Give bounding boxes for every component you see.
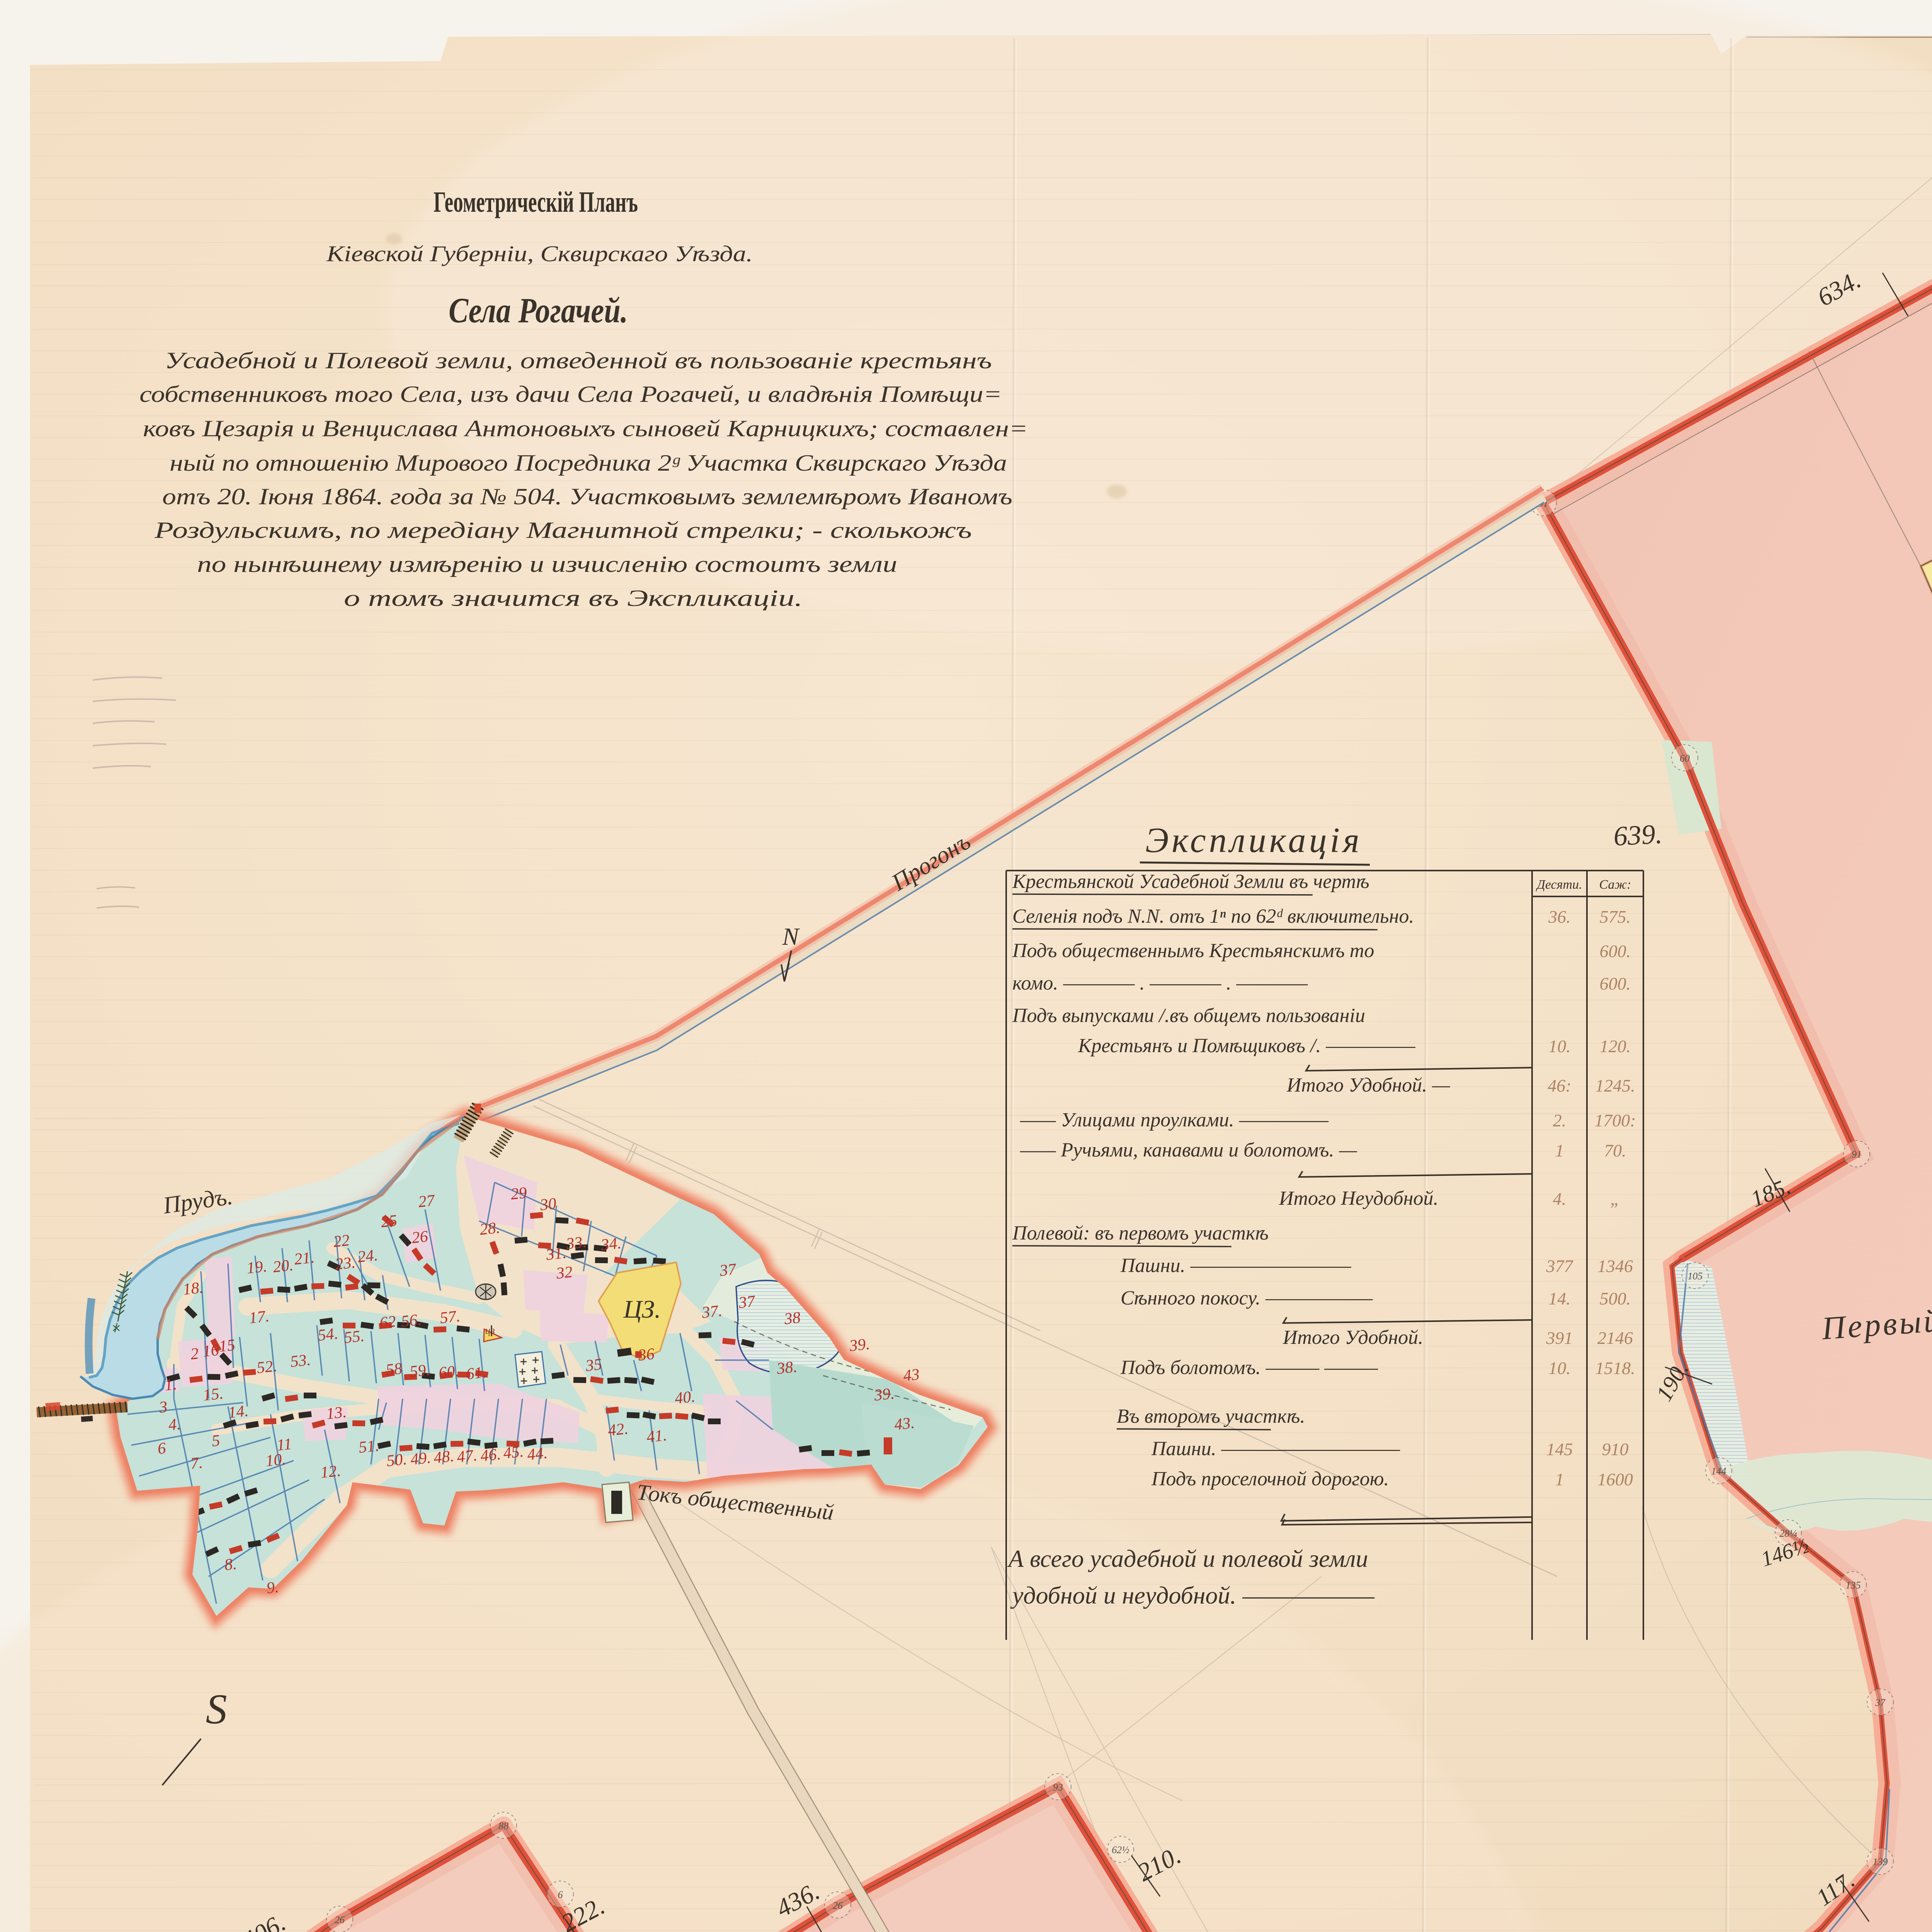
svg-text:Подъ выпусками /.въ общемъ пол: Подъ выпусками /.въ общемъ пользованіи [1012,1005,1365,1027]
svg-text:18.: 18. [182,1279,204,1298]
svg-text:88: 88 [498,1820,509,1832]
svg-text:26: 26 [833,1900,843,1911]
svg-text:Усадебной и Полевой земли, отв: Усадебной и Полевой земли, отведенной въ… [165,348,992,373]
svg-text:10.: 10. [1548,1358,1571,1378]
svg-text:46:: 46: [1548,1076,1571,1095]
svg-text:52.: 52. [256,1357,278,1377]
svg-text:ный по отношенію Мирового Поср: ный по отношенію Мирового Посредника 2ᵍ … [170,450,1007,476]
svg-text:Итого Удобной.: Итого Удобной. [1282,1327,1423,1349]
svg-text:62½: 62½ [1112,1844,1129,1855]
svg-text:105: 105 [1688,1270,1703,1282]
svg-text:10.: 10. [1548,1036,1571,1056]
svg-text:20.: 20. [272,1256,294,1276]
svg-text:Итого Неудобной.: Итого Неудобной. [1279,1187,1439,1209]
svg-text:Роздульскимъ, по мередіану: Роздульскимъ, по мередіану Магнитной стр… [154,517,972,543]
svg-text:Пашни. —————————: Пашни. ————————— [1120,1255,1351,1277]
svg-text:51.: 51. [358,1437,380,1456]
svg-text:39.: 39. [873,1384,895,1404]
svg-text:19.: 19. [246,1257,268,1277]
svg-text:по нынѣшнему измѣренію и из: по нынѣшнему измѣренію и изчисленію сост… [197,551,897,577]
svg-text:62: 62 [379,1313,397,1332]
svg-text:32: 32 [555,1263,573,1282]
svg-text:25: 25 [380,1212,398,1231]
svg-text:59.: 59. [409,1361,431,1381]
svg-text:12.: 12. [320,1462,342,1481]
svg-text:26: 26 [335,1914,345,1925]
svg-text:34.: 34. [600,1234,622,1254]
svg-text:2146: 2146 [1597,1328,1633,1348]
svg-text:23.: 23. [334,1253,356,1273]
svg-text:38: 38 [783,1309,801,1328]
svg-text:139: 139 [1873,1856,1888,1867]
svg-text:36: 36 [637,1345,655,1364]
svg-text:500.: 500. [1600,1289,1631,1308]
svg-text:639.: 639. [1613,818,1663,852]
svg-text:комо. ———— . ———— . ————: комо. ———— . ———— . ———— [1012,972,1308,994]
svg-text:42.: 42. [607,1420,629,1439]
svg-text:А всего усадебной и полевой: А всего усадебной и полевой земли [1007,1545,1368,1572]
svg-text:14.: 14. [227,1402,249,1422]
svg-text:377: 377 [1546,1256,1574,1276]
svg-text:Подъ болотомъ. ——— ———: Подъ болотомъ. ——— ——— [1120,1357,1378,1379]
svg-text:36.: 36. [1548,907,1571,927]
svg-text:22: 22 [332,1231,350,1251]
svg-text:575.: 575. [1600,907,1631,927]
svg-text:57.: 57. [439,1307,461,1327]
svg-text:24.: 24. [357,1246,379,1266]
svg-text:9.: 9. [266,1578,280,1597]
svg-text:910: 910 [1602,1439,1629,1459]
svg-text:37.: 37. [701,1302,723,1321]
svg-text:70.: 70. [1604,1141,1626,1160]
svg-text:1245.: 1245. [1595,1076,1635,1095]
svg-text:93: 93 [1053,1782,1063,1793]
svg-text:50.: 50. [386,1450,408,1470]
svg-text:Итого Удобной. —: Итого Удобной. — [1286,1074,1450,1096]
svg-text:47.: 47. [456,1446,478,1466]
svg-text:29: 29 [510,1184,528,1203]
svg-text:ковъ Цезарія и Венцислава Анто: ковъ Цезарія и Венцислава Антоновыхъ сын… [143,416,1028,441]
svg-text:54.: 54. [317,1325,339,1344]
svg-text:56.: 56. [400,1311,422,1330]
svg-text:26: 26 [411,1228,429,1247]
svg-text:45.: 45. [502,1442,524,1462]
svg-text:145: 145 [1546,1439,1573,1459]
svg-text:41.: 41. [646,1426,668,1446]
svg-text:Села Рогачей.: Села Рогачей. [449,291,628,330]
svg-text:46.: 46. [480,1445,502,1465]
svg-text:11: 11 [276,1435,293,1454]
svg-text:цз: цз [485,1325,495,1337]
svg-text:91: 91 [1852,1149,1862,1160]
svg-text:—— Ручьями, канавами и болотом: —— Ручьями, канавами и болотомъ. — [1020,1139,1357,1161]
svg-text:16: 16 [202,1341,220,1361]
svg-text:Селенія подъ N.N. отъ 1ⁿ по 62: Селенія подъ N.N. отъ 1ⁿ по 62ᵈ включите… [1012,905,1414,927]
svg-text:600.: 600. [1600,941,1631,961]
svg-text:Полевой: въ первомъ участкѣ: Полевой: въ первомъ участкѣ [1012,1222,1269,1244]
svg-text:Подъ общественнымъ Крестьянски: Подъ общественнымъ Крестьянскимъ то [1012,940,1374,962]
svg-text:о томъ значится въ Эксплика: о томъ значится въ Экспликаціи. [344,585,803,611]
svg-text:1346: 1346 [1597,1256,1633,1276]
svg-text:48.: 48. [433,1447,455,1467]
svg-text:58: 58 [385,1360,403,1379]
svg-text:600.: 600. [1600,974,1631,993]
svg-text:13.: 13. [325,1403,347,1423]
svg-text:44.: 44. [526,1444,548,1464]
svg-text:8.: 8. [224,1555,238,1574]
svg-text:49.: 49. [410,1449,432,1468]
svg-text:120.: 120. [1600,1036,1631,1056]
svg-text:Экспликація: Экспликація [1145,820,1362,860]
svg-text:удобной и неудобной. ——————: удобной и неудобной. —————— [1010,1582,1375,1609]
svg-text:43: 43 [902,1366,920,1385]
svg-text:Десяти.: Десяти. [1536,878,1582,892]
svg-text:Кіевской Губерніи, Сквирскаг: Кіевской Губерніи, Сквирскаго Уѣзда. [326,241,753,266]
svg-text:144: 144 [1711,1466,1726,1477]
svg-text:40.: 40. [674,1388,696,1407]
svg-text:S: S [206,1685,227,1733]
svg-text:37: 37 [737,1293,757,1312]
svg-text:33.: 33. [565,1233,587,1253]
svg-text:39.: 39. [848,1335,871,1355]
svg-text:28.: 28. [479,1219,501,1238]
svg-text:53.: 53. [289,1351,311,1371]
svg-text:37: 37 [1875,1697,1886,1708]
svg-text:6: 6 [558,1889,563,1900]
svg-text:60: 60 [1680,753,1690,764]
svg-text:37: 37 [718,1260,738,1280]
svg-text:N: N [782,923,800,950]
svg-text:2.: 2. [1553,1111,1566,1130]
svg-text:1518.: 1518. [1595,1358,1635,1378]
svg-text:27: 27 [417,1192,436,1211]
svg-text:35: 35 [584,1355,603,1375]
svg-text:7.: 7. [190,1454,204,1473]
svg-text:38.: 38. [776,1358,798,1378]
svg-text:Крестьянской Усадебной Земли в: Крестьянской Усадебной Земли въ чертѣ [1012,871,1369,893]
svg-text:31.: 31. [545,1244,567,1264]
svg-text:1: 1 [1555,1469,1564,1489]
svg-text:30: 30 [539,1195,557,1214]
svg-text:собственниковъ того Села, изъ: собственниковъ того Села, изъ дачи Села … [139,381,1002,407]
svg-text:4.: 4. [1553,1189,1566,1209]
svg-text:—— Улицами проулками. —————: —— Улицами проулками. ————— [1020,1109,1329,1131]
svg-text:1: 1 [1555,1141,1564,1160]
svg-text:Геометрическій Планъ: Геометрическій Планъ [434,186,638,218]
svg-text:60.: 60. [438,1362,460,1382]
svg-text:ЦЗ.: ЦЗ. [623,1295,661,1323]
svg-text:отъ 20. Іюня 1864. года за № 5: отъ 20. Іюня 1864. года за № 504. Участк… [162,484,1012,509]
svg-text:1700:: 1700: [1594,1111,1636,1130]
svg-text:1600: 1600 [1597,1469,1633,1489]
svg-text:1.: 1. [164,1376,178,1395]
svg-text:Сѣнного покосу. ——————: Сѣнного покосу. —————— [1121,1287,1373,1309]
svg-text:Саж:: Саж: [1599,878,1631,892]
svg-text:„: „ [1610,1189,1620,1209]
svg-text:Подъ проселочной дорогою.: Подъ проселочной дорогою. [1151,1468,1389,1490]
svg-text:Пашни. ——————————: Пашни. —————————— [1151,1438,1400,1460]
svg-text:Въ второмъ участкѣ.: Въ второмъ участкѣ. [1117,1405,1305,1427]
svg-text:55.: 55. [343,1327,365,1347]
svg-text:4.: 4. [168,1415,182,1434]
svg-text:17.: 17. [248,1307,270,1327]
svg-text:61.: 61. [465,1363,487,1383]
svg-text:Крестьянъ и Помѣщиковъ /. ————: Крестьянъ и Помѣщиковъ /. ————— [1078,1035,1415,1057]
svg-text:15: 15 [218,1336,236,1355]
svg-text:21.: 21. [293,1248,315,1268]
svg-text:14.: 14. [1548,1289,1571,1308]
svg-text:43.: 43. [893,1414,915,1434]
svg-text:391: 391 [1546,1328,1573,1348]
svg-text:135: 135 [1846,1580,1861,1591]
svg-text:15.: 15. [202,1384,224,1404]
